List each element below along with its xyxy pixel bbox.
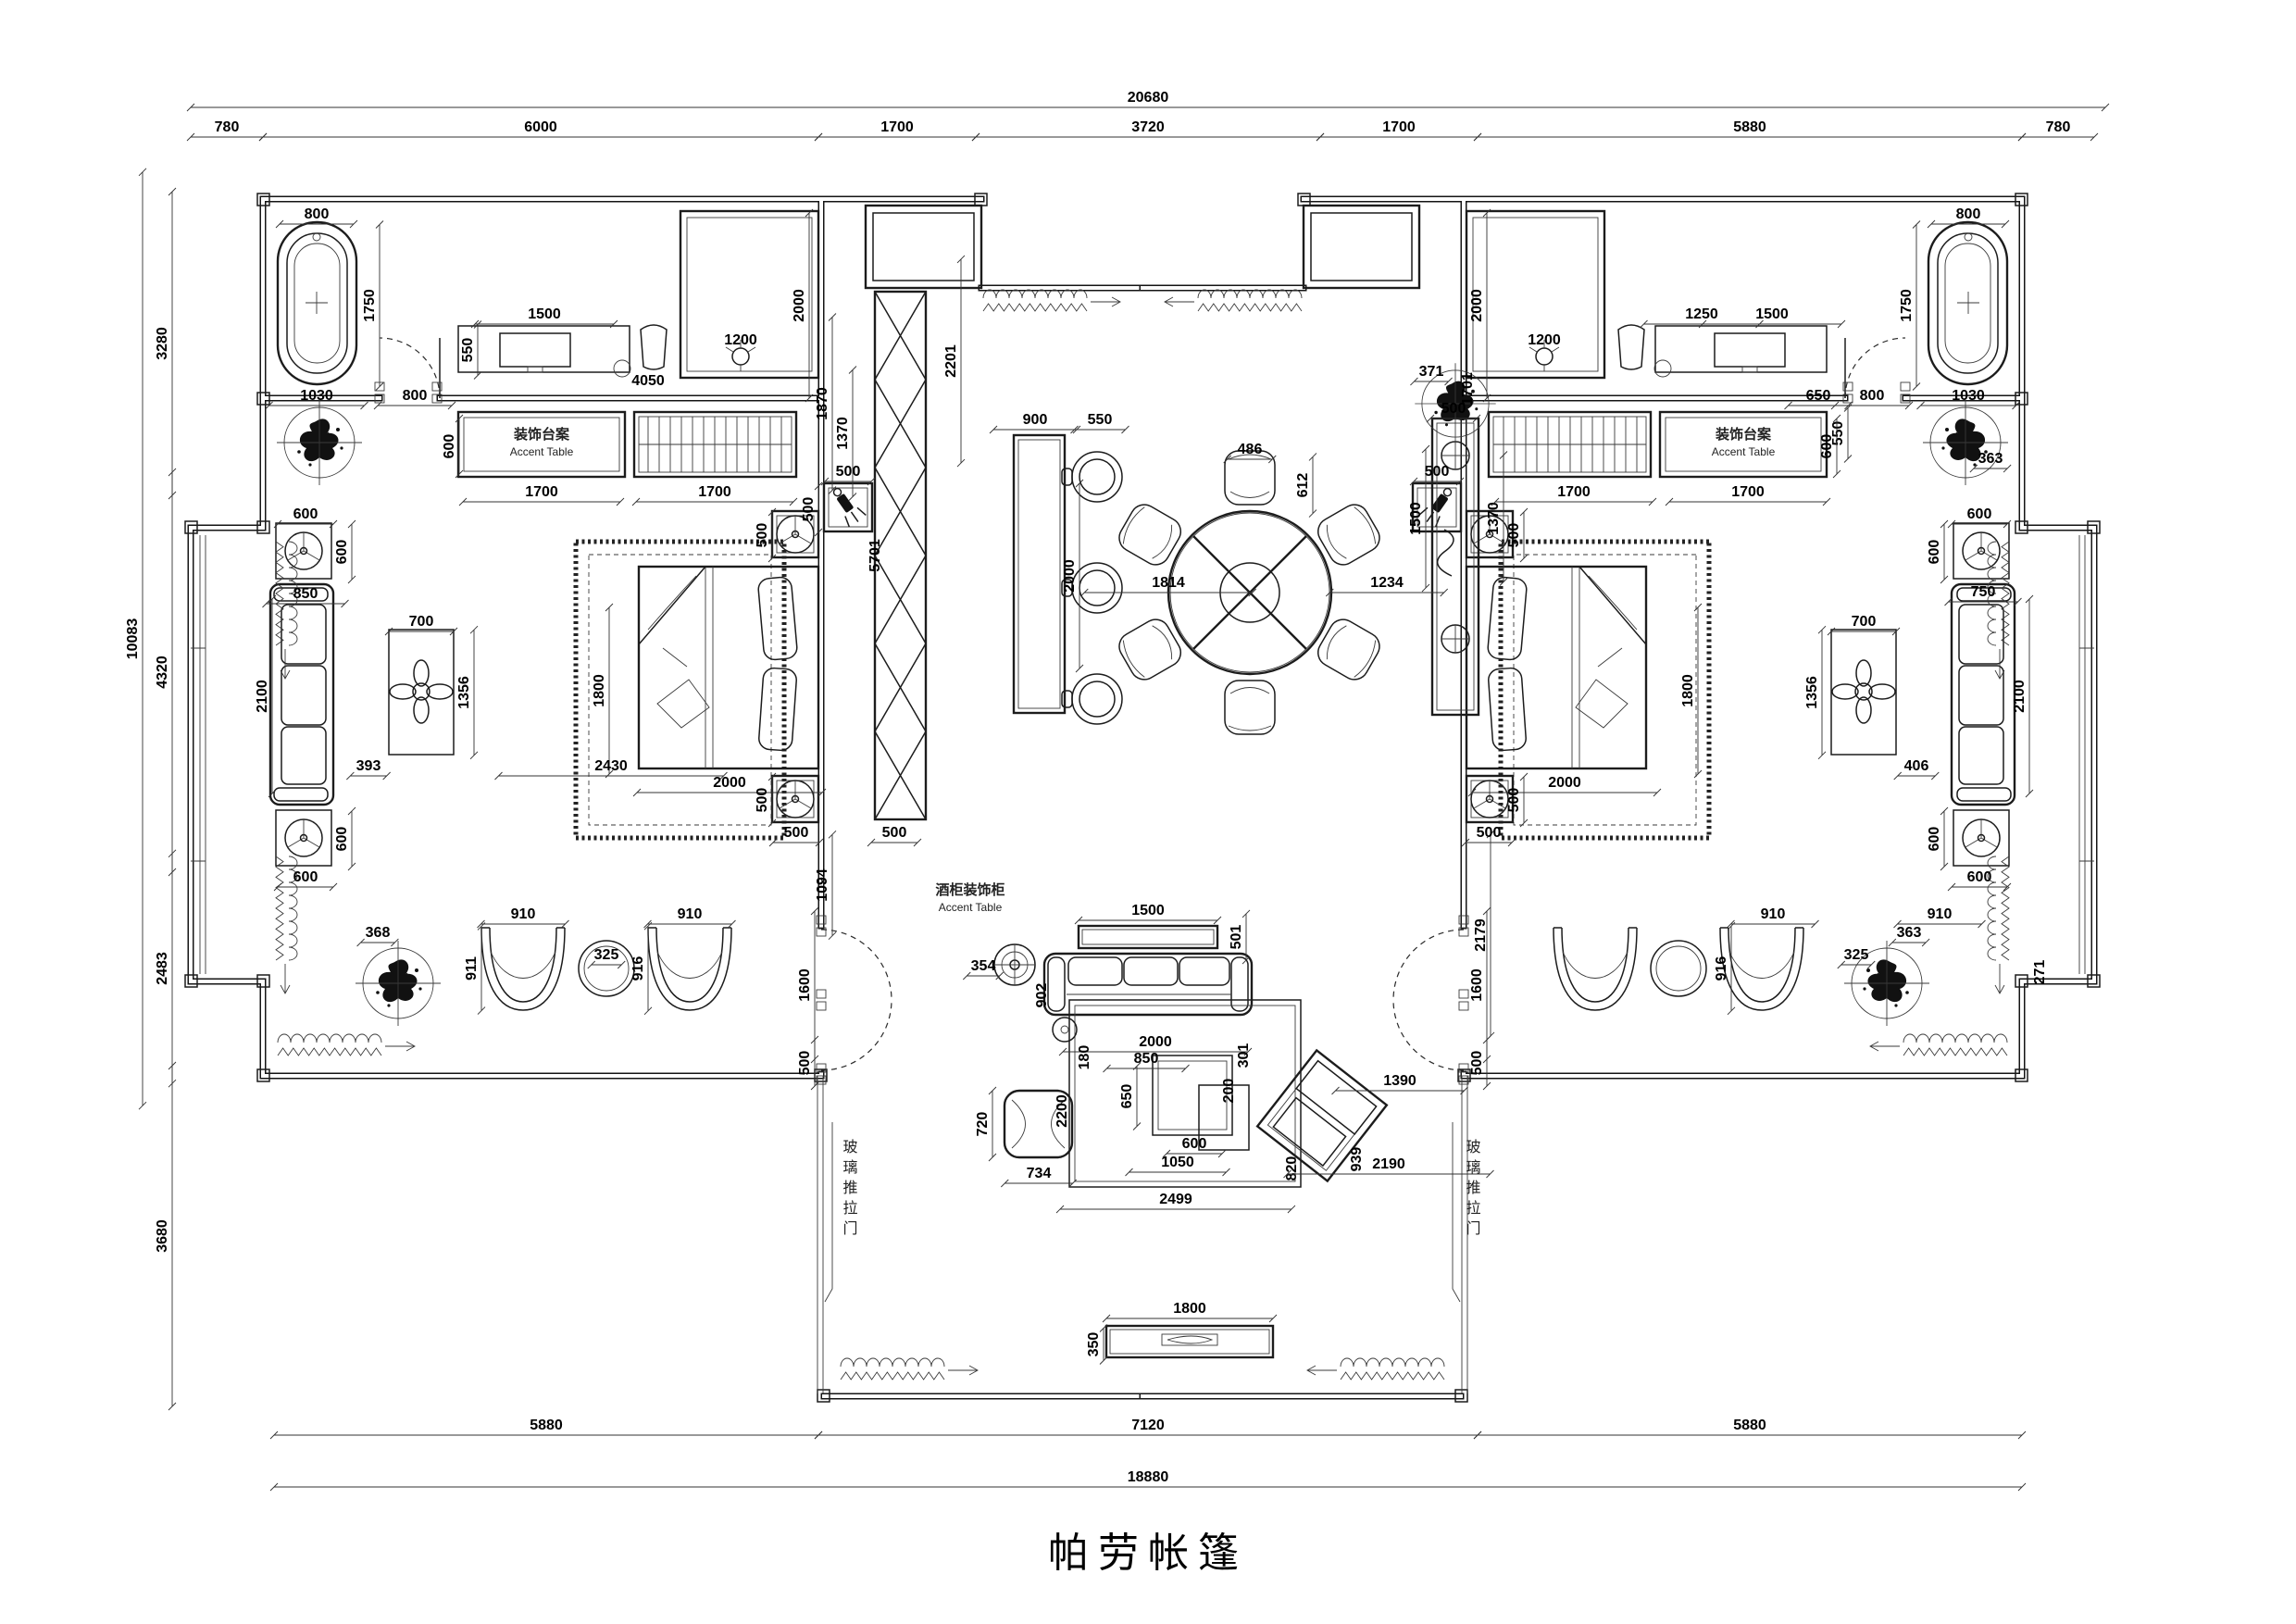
room-label: 酒柜装饰柜	[935, 881, 1004, 898]
floor-lamp	[994, 944, 1035, 985]
dimension-label: 2000	[792, 289, 807, 322]
dimension-label: 20680	[1128, 90, 1169, 106]
dimension-label: 1700	[880, 119, 914, 135]
dimension-label: 4320	[155, 656, 170, 689]
room-label-en: Accent Table	[510, 445, 574, 458]
dimension-label: 600	[1182, 1136, 1207, 1152]
dimension-label: 900	[1023, 412, 1048, 428]
bar-stool	[1062, 674, 1122, 724]
dimension-label: 600	[293, 869, 318, 885]
dimension-label: 500	[1506, 788, 1522, 813]
dimension-label: 600	[1819, 434, 1835, 459]
dimension-label: 911	[464, 956, 480, 981]
dimension-label: 780	[215, 119, 240, 135]
dimension-label: 600	[334, 827, 350, 852]
dimension-label: 1800	[592, 674, 607, 707]
dimension-label: 600	[442, 434, 457, 459]
dimension-label: 2100	[2012, 680, 2028, 713]
dimension-label: 6000	[524, 119, 557, 135]
dimension-label: 3680	[155, 1219, 170, 1253]
dimension-label: 500	[836, 464, 861, 480]
dimension-label: 1600	[1469, 968, 1485, 1002]
dimension-label: 1700	[698, 484, 731, 500]
dimension-label: 910	[678, 906, 703, 922]
plan-title: 帕劳帐篷	[1048, 1530, 1248, 1576]
dimension-label: 1234	[1370, 575, 1404, 591]
dimension-label: 271	[2032, 960, 2048, 985]
bar-counter	[1014, 435, 1065, 713]
media-console	[1106, 1326, 1273, 1357]
dimension-label: 1701	[1460, 372, 1476, 406]
dimension-label: 600	[1967, 869, 1992, 885]
dimension-label: 1356	[1804, 676, 1820, 709]
dimension-label: 2499	[1159, 1192, 1192, 1207]
dimension-label: 500	[801, 497, 817, 522]
dimension-label: 650	[1806, 388, 1831, 404]
sofa-console	[1079, 926, 1217, 948]
dimension-label: 1500	[528, 306, 561, 322]
dimension-label: 1750	[1899, 289, 1915, 322]
dimension-label: 363	[1897, 925, 1922, 941]
dimension-label: 3720	[1131, 119, 1165, 135]
dimension-label: 354	[971, 958, 996, 974]
dimension-label: 734	[1027, 1166, 1052, 1181]
bar-stool	[1062, 452, 1122, 502]
dimension-label: 1050	[1161, 1155, 1194, 1170]
dimension-label: 550	[460, 338, 476, 363]
dimension-label: 820	[1284, 1156, 1300, 1181]
dimension-label: 1700	[525, 484, 558, 500]
room-label-en: Accent Table	[939, 901, 1003, 914]
dimension-label: 7120	[1131, 1418, 1165, 1433]
dimension-label: 910	[1761, 906, 1786, 922]
dimension-label: 486	[1238, 442, 1263, 457]
floor-plan-page: 2068078060001700372017005880780100833280…	[0, 0, 2296, 1624]
dimension-label: 2430	[594, 758, 628, 774]
dimension-label: 600	[1927, 540, 1942, 565]
dimension-label: 2000	[1139, 1034, 1172, 1050]
dimension-label: 363	[1978, 451, 2003, 467]
dimension-label: 301	[1236, 1043, 1252, 1068]
dimension-label: 2000	[1062, 559, 1078, 593]
dimension-label: 800	[305, 206, 330, 222]
dimension-label: 500	[755, 788, 770, 813]
dimension-label: 1094	[815, 868, 830, 902]
dimension-label: 1370	[1486, 502, 1502, 535]
dimension-label: 720	[975, 1112, 991, 1137]
dimension-label: 910	[1928, 906, 1953, 922]
dimension-label: 800	[1860, 388, 1885, 404]
dimension-label: 902	[1034, 983, 1050, 1008]
dimension-label: 1750	[362, 289, 378, 322]
dimension-label: 550	[1088, 412, 1113, 428]
dimension-label: 500	[1477, 825, 1502, 841]
dimension-label: 1700	[1557, 484, 1591, 500]
dimension-label: 850	[1134, 1051, 1159, 1067]
small-lamp	[1053, 1018, 1077, 1042]
dimension-label: 600	[293, 506, 318, 522]
dimension-label: 1800	[1680, 674, 1696, 707]
room-label: 装饰台案	[1715, 426, 1772, 443]
dimension-label: 500	[882, 825, 907, 841]
dimension-label: 350	[1086, 1332, 1102, 1357]
dimension-label: 500	[797, 1051, 813, 1076]
dimension-label: 200	[1221, 1079, 1237, 1104]
dimension-label: 600	[334, 540, 350, 565]
dimension-label: 939	[1349, 1147, 1365, 1172]
dimension-label: 406	[1904, 758, 1929, 774]
dimension-label: 1600	[797, 968, 813, 1002]
dimension-label: 325	[594, 947, 619, 963]
dimension-label: 600	[1967, 506, 1992, 522]
dimension-label: 2100	[255, 680, 270, 713]
dimension-label: 1030	[1952, 388, 1985, 404]
dimension-label: 4050	[631, 373, 665, 389]
dimension-label: 371	[1419, 364, 1444, 380]
dimension-label: 5701	[867, 539, 883, 572]
dimension-label: 700	[409, 614, 434, 630]
dimension-label: 5880	[1733, 1418, 1766, 1433]
dimension-label: 2200	[1054, 1094, 1070, 1128]
accent-chair	[1257, 1050, 1387, 1181]
room-label: 玻璃推拉门	[841, 1139, 858, 1241]
dimension-label: 916	[630, 956, 646, 981]
dimension-label: 1500	[1131, 903, 1165, 918]
dimension-label: 916	[1714, 956, 1729, 981]
room-label: 玻璃推拉门	[1464, 1139, 1481, 1241]
dimension-label: 393	[356, 758, 381, 774]
dimension-label: 1870	[815, 387, 830, 420]
dimension-label: 5880	[530, 1418, 563, 1433]
dimension-label: 700	[1852, 614, 1877, 630]
dimension-label: 1390	[1383, 1073, 1416, 1089]
suite-right	[1142, 194, 2100, 1402]
dimension-label: 1200	[1528, 332, 1561, 348]
dimension-label: 1030	[300, 388, 333, 404]
dimension-label: 1200	[724, 332, 757, 348]
dimension-label: 2190	[1372, 1156, 1405, 1172]
dimension-label: 612	[1295, 473, 1311, 498]
dimension-label: 10083	[125, 618, 141, 660]
room-label-en: Accent Table	[1712, 445, 1776, 458]
dining-chair	[1225, 681, 1275, 734]
dimension-label: 650	[1119, 1084, 1135, 1109]
dimension-label: 2179	[1473, 918, 1489, 952]
room-label: 装饰台案	[513, 426, 570, 443]
dimension-label: 501	[1229, 925, 1244, 950]
dimension-label: 780	[2046, 119, 2071, 135]
dimension-label: 1250	[1685, 306, 1718, 322]
dimension-label: 180	[1077, 1045, 1092, 1070]
dimension-label: 1500	[1755, 306, 1789, 322]
dimension-label: 3280	[155, 327, 170, 360]
dimension-label: 500	[1425, 464, 1450, 480]
dimension-label: 2000	[1469, 289, 1485, 322]
dimension-label: 1356	[456, 676, 472, 709]
dimension-label: 18880	[1128, 1469, 1169, 1485]
dimension-label: 1370	[835, 417, 851, 450]
dimension-label: 2483	[155, 952, 170, 985]
dimension-label: 1700	[1731, 484, 1765, 500]
dimension-label: 1500	[1408, 502, 1424, 535]
dimension-label: 5880	[1733, 119, 1766, 135]
dimension-label: 2000	[1548, 775, 1581, 791]
dimension-label: 750	[1971, 584, 1996, 600]
floor-plan-canvas: 2068078060001700372017005880780100833280…	[0, 0, 2296, 1624]
dimension-label: 500	[1469, 1051, 1485, 1076]
dimension-label: 850	[293, 586, 318, 602]
dimension-label: 368	[366, 925, 391, 941]
dimension-label: 2201	[943, 344, 959, 378]
dimension-label: 1814	[1152, 575, 1185, 591]
dimension-label: 910	[511, 906, 536, 922]
dimension-label: 2000	[713, 775, 746, 791]
dimension-label: 500	[784, 825, 809, 841]
dimension-label: 1800	[1173, 1301, 1206, 1317]
dimension-label: 500	[1506, 523, 1522, 548]
dimension-label: 1700	[1382, 119, 1416, 135]
dimension-label: 500	[755, 523, 770, 548]
dimension-label: 600	[1927, 827, 1942, 852]
dimension-label: 800	[1956, 206, 1981, 222]
dimension-label: 325	[1844, 947, 1869, 963]
dimension-label: 800	[403, 388, 428, 404]
